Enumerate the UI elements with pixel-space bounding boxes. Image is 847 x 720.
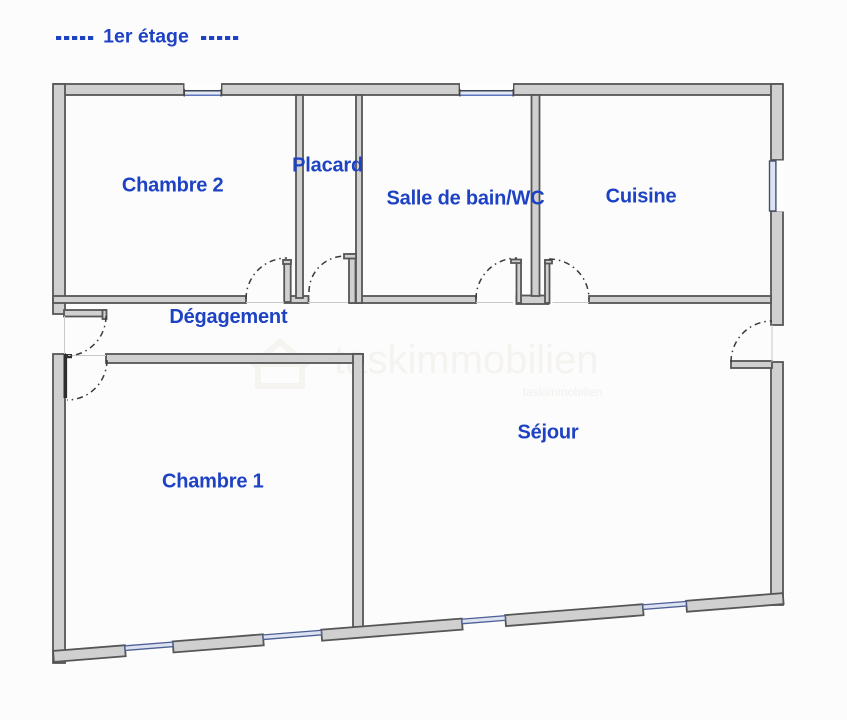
svg-text:taskimmobilien: taskimmobilien: [334, 338, 599, 382]
svg-text:Chambre 2: Chambre 2: [122, 175, 224, 197]
svg-text:1er étage: 1er étage: [103, 26, 189, 48]
svg-text:Séjour: Séjour: [517, 422, 578, 444]
svg-text:Dégagement: Dégagement: [169, 306, 288, 328]
svg-text:Placard: Placard: [292, 155, 363, 177]
svg-text:Salle de bain/WC: Salle de bain/WC: [387, 188, 545, 210]
svg-text:Cuisine: Cuisine: [606, 186, 677, 208]
svg-text:taskimmobilien: taskimmobilien: [523, 385, 602, 399]
svg-text:Chambre 1: Chambre 1: [162, 471, 264, 493]
